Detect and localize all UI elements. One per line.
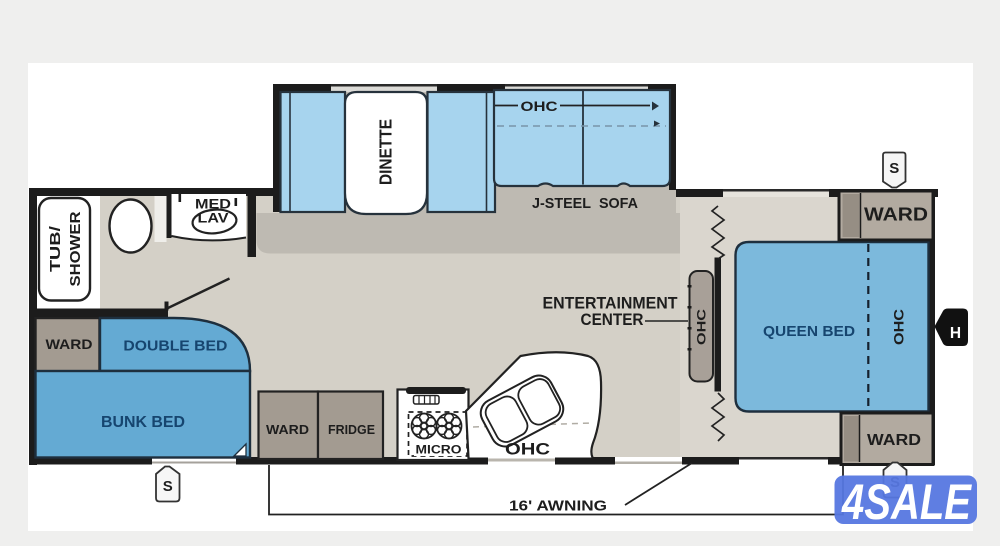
svg-text:SHOWER: SHOWER xyxy=(67,211,84,286)
svg-text:DINETTE: DINETTE xyxy=(376,119,396,185)
svg-text:QUEEN BED: QUEEN BED xyxy=(763,323,855,340)
svg-text:OHC: OHC xyxy=(891,309,907,345)
svg-text:DOUBLE BED: DOUBLE BED xyxy=(123,339,227,355)
svg-text:TUB/: TUB/ xyxy=(47,225,64,272)
svg-text:MICRO: MICRO xyxy=(416,445,462,457)
svg-text:H: H xyxy=(950,325,961,342)
svg-text:OHC: OHC xyxy=(505,440,550,459)
svg-text:OHC: OHC xyxy=(521,98,558,114)
svg-text:S: S xyxy=(163,478,173,495)
svg-text:OHC: OHC xyxy=(695,309,709,345)
svg-text:BUNK BED: BUNK BED xyxy=(101,414,185,431)
svg-text:FRIDGE: FRIDGE xyxy=(328,423,375,437)
svg-text:CENTER: CENTER xyxy=(581,310,644,329)
svg-text:16' AWNING: 16' AWNING xyxy=(509,498,607,515)
svg-text:LAV: LAV xyxy=(198,211,229,226)
svg-text:WARD: WARD xyxy=(46,336,93,352)
svg-text:MED: MED xyxy=(195,197,231,212)
svg-text:4SALE: 4SALE xyxy=(841,474,972,530)
svg-text:WARD: WARD xyxy=(867,432,921,449)
svg-text:WARD: WARD xyxy=(864,205,928,225)
svg-text:J-STEEL SOFA: J-STEEL SOFA xyxy=(532,195,638,212)
svg-text:WARD: WARD xyxy=(266,423,309,437)
svg-text:S: S xyxy=(889,160,899,177)
